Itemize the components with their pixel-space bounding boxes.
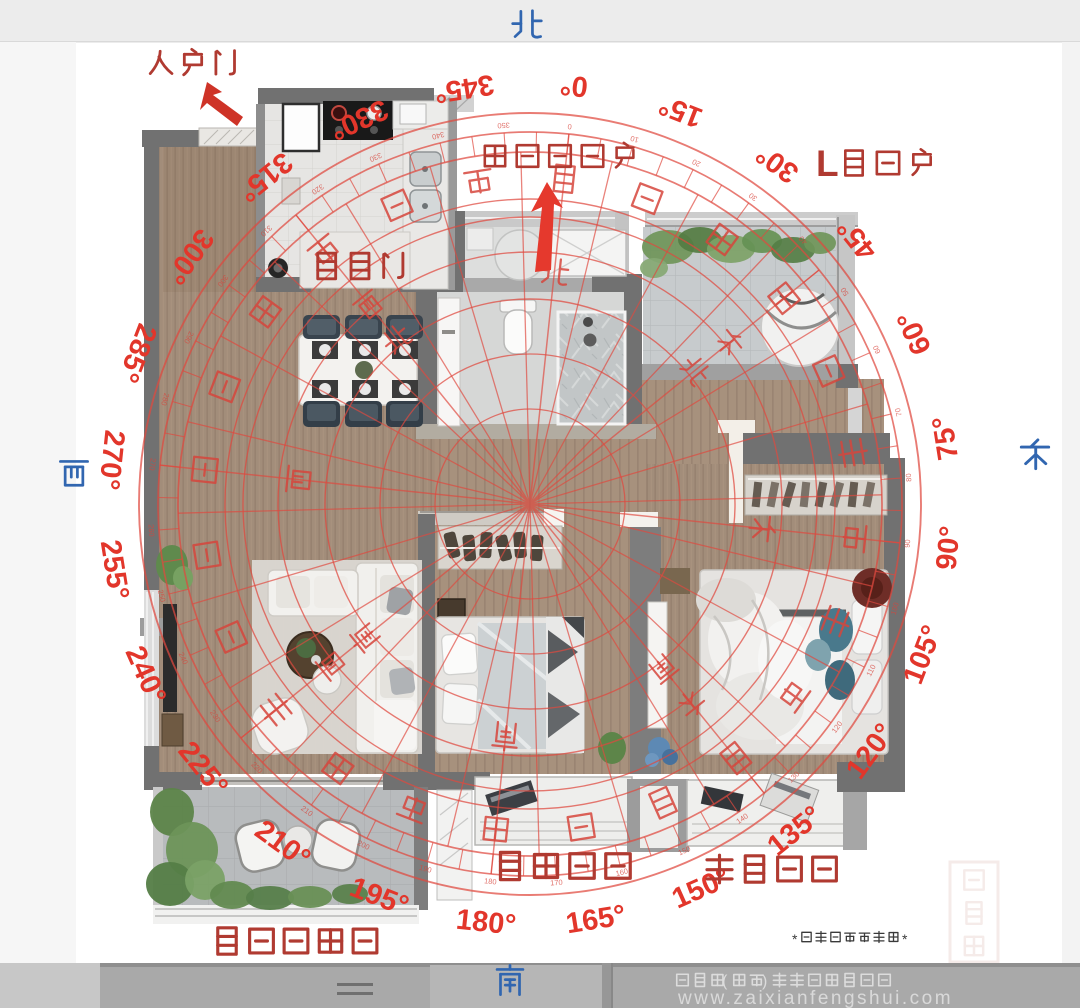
svg-text:90: 90 [903, 539, 913, 548]
svg-text:80: 80 [904, 473, 914, 482]
svg-text:www.zaixianfengshui.com: www.zaixianfengshui.com [677, 988, 953, 1008]
svg-text:*: * [792, 931, 798, 947]
svg-text:270: 270 [147, 458, 157, 471]
svg-text:*: * [902, 931, 908, 947]
svg-text:350: 350 [497, 120, 510, 130]
svg-text:75°: 75° [927, 414, 965, 462]
svg-text:180°: 180° [454, 904, 517, 942]
svg-text:0°: 0° [559, 68, 590, 103]
svg-text:270°: 270° [92, 428, 130, 491]
svg-text:90°: 90° [930, 525, 966, 572]
svg-text:180: 180 [484, 876, 497, 886]
svg-text:L: L [816, 143, 839, 184]
svg-text:260: 260 [146, 524, 156, 537]
